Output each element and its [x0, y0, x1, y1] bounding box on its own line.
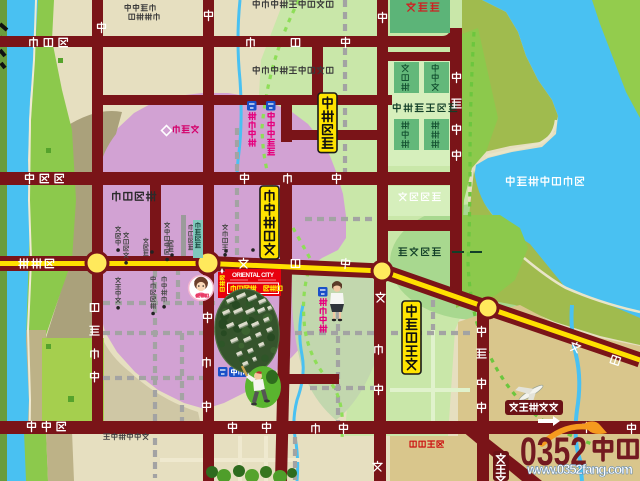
svg-text:www.0352fang.com: www.0352fang.com: [526, 462, 633, 477]
svg-text:ORIENTAL CITY: ORIENTAL CITY: [232, 272, 275, 279]
